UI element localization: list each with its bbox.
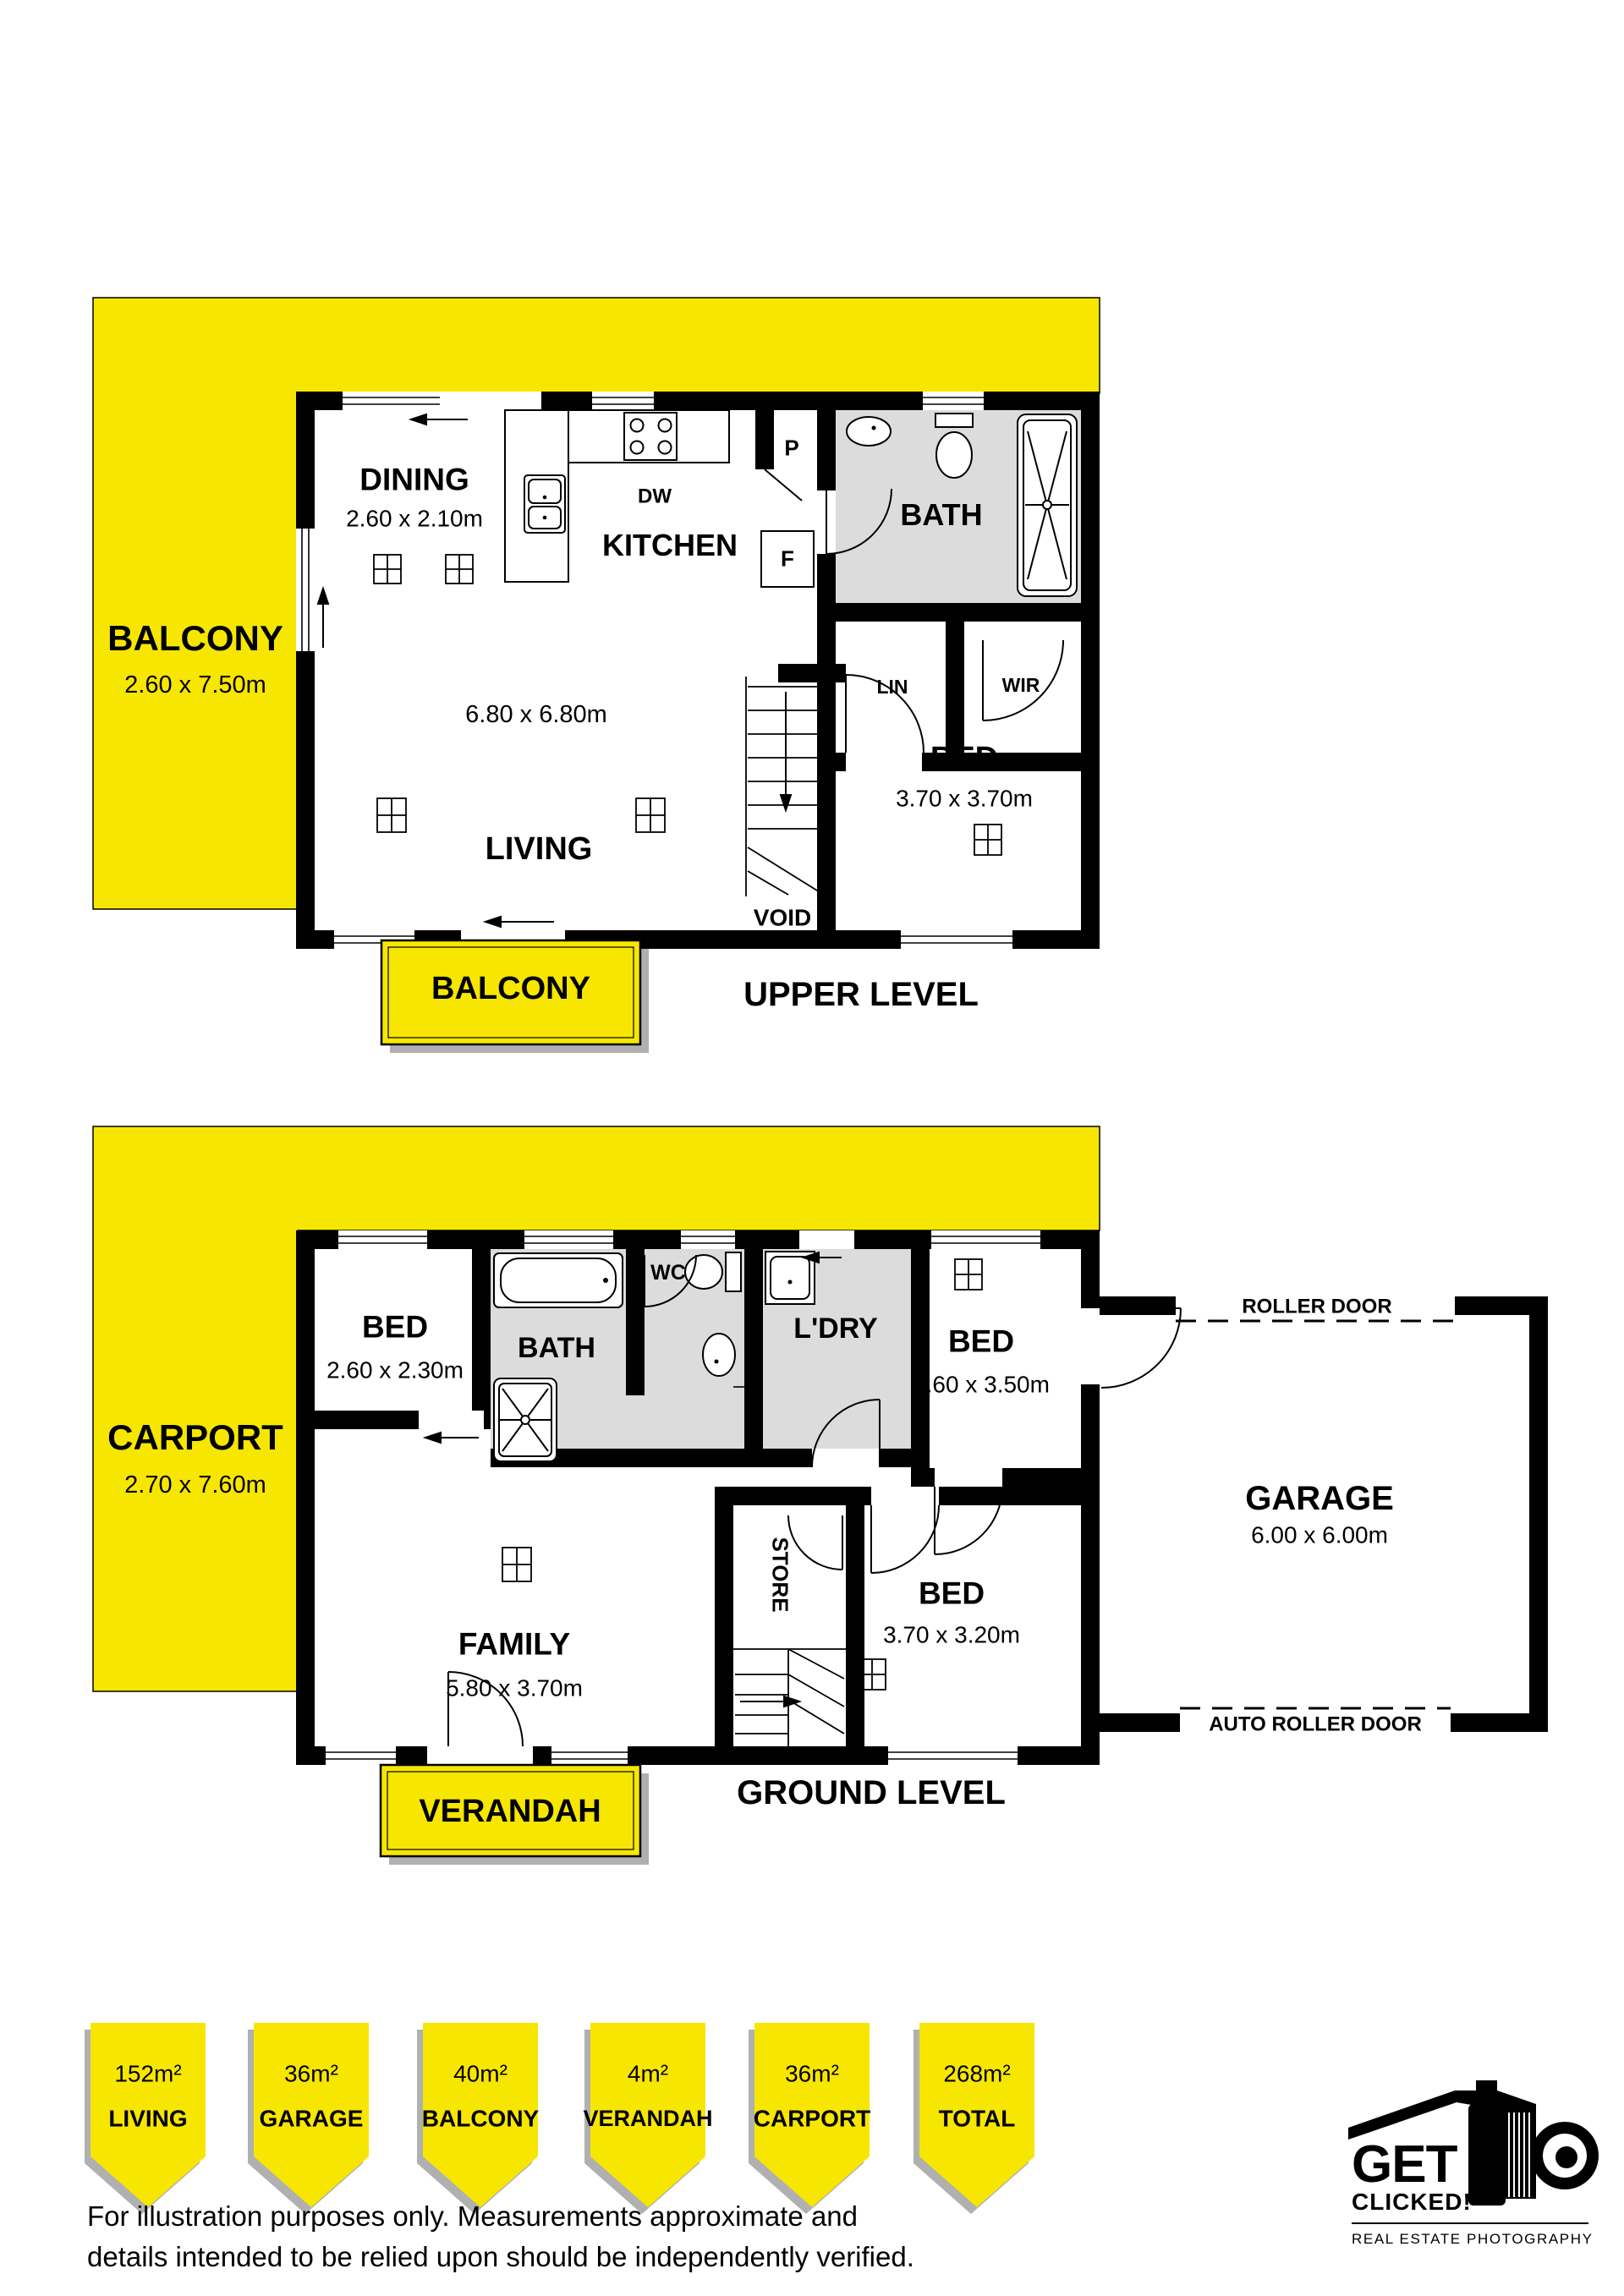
badge-living-label: LIVING (108, 2106, 187, 2130)
badge-balcony-value: 40m² (453, 2061, 507, 2085)
badge-living-value: 152m² (114, 2061, 181, 2085)
badge-verandah-value: 4m² (628, 2061, 668, 2085)
badge-total-value: 268m² (943, 2061, 1010, 2085)
window-symbols (0, 0, 1624, 2296)
floorplan-canvas: BALCONY 2.60 x 7.50m DINING 2.60 x 2.10m… (0, 0, 1624, 2296)
badge-total-label: TOTAL (939, 2106, 1016, 2130)
disclaimer-line2: details intended to be relied upon shoul… (87, 2241, 914, 2273)
badge-carport-label: CARPORT (754, 2106, 870, 2130)
badge-balcony-label: BALCONY (422, 2106, 539, 2130)
badge-garage-value: 36m² (284, 2061, 338, 2085)
disclaimer-line1: For illustration purposes only. Measurem… (87, 2200, 858, 2233)
badge-garage-label: GARAGE (260, 2106, 364, 2130)
badge-verandah-label: VERANDAH (583, 2107, 712, 2130)
logo-word-get: GET (1352, 2134, 1457, 2195)
badge-carport-value: 36m² (785, 2061, 839, 2085)
logo-word-clicked: CLICKED! (1352, 2189, 1472, 2216)
logo-tagline: REAL ESTATE PHOTOGRAPHY (1352, 2231, 1594, 2248)
